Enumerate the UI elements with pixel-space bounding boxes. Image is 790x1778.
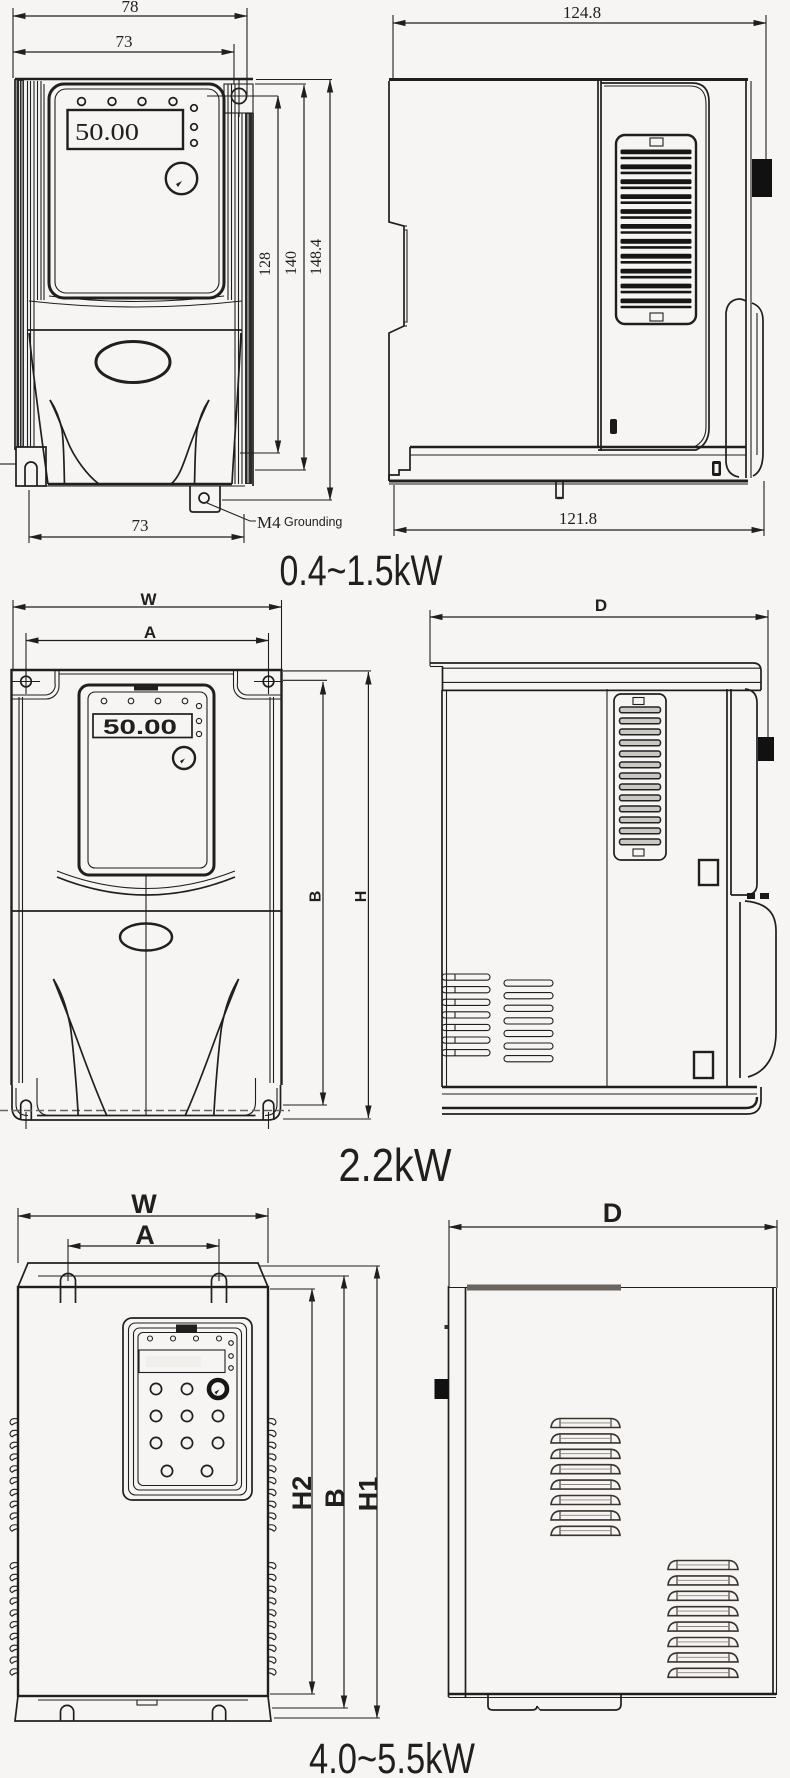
svg-text:78: 78 xyxy=(122,0,139,16)
svg-text:D: D xyxy=(595,596,607,615)
svg-text:Grounding: Grounding xyxy=(284,515,342,529)
svg-text:W: W xyxy=(131,1189,157,1219)
svg-text:A: A xyxy=(144,623,156,642)
svg-text:73: 73 xyxy=(132,516,149,535)
svg-text:B: B xyxy=(320,1488,350,1508)
svg-text:124.8: 124.8 xyxy=(563,3,601,22)
svg-text:128: 128 xyxy=(257,252,274,276)
svg-text:4.0~5.5kW: 4.0~5.5kW xyxy=(309,1735,475,1778)
svg-text:148.4: 148.4 xyxy=(308,239,325,275)
svg-text:M4: M4 xyxy=(257,513,281,532)
svg-text:D: D xyxy=(603,1198,623,1228)
svg-text:H1: H1 xyxy=(354,1477,384,1512)
svg-text:2.2kW: 2.2kW xyxy=(339,1139,452,1191)
svg-text:B: B xyxy=(308,891,325,903)
svg-text:140: 140 xyxy=(283,251,300,275)
svg-text:73: 73 xyxy=(116,32,133,51)
svg-text:W: W xyxy=(140,590,157,609)
svg-text:50.00: 50.00 xyxy=(103,716,177,739)
svg-text:H: H xyxy=(353,891,370,903)
svg-text:A: A xyxy=(135,1220,155,1250)
svg-text:0.4~1.5kW: 0.4~1.5kW xyxy=(280,547,443,595)
svg-text:H2: H2 xyxy=(287,1476,317,1511)
svg-text:50.00: 50.00 xyxy=(75,120,139,146)
svg-text:121.8: 121.8 xyxy=(559,509,597,528)
